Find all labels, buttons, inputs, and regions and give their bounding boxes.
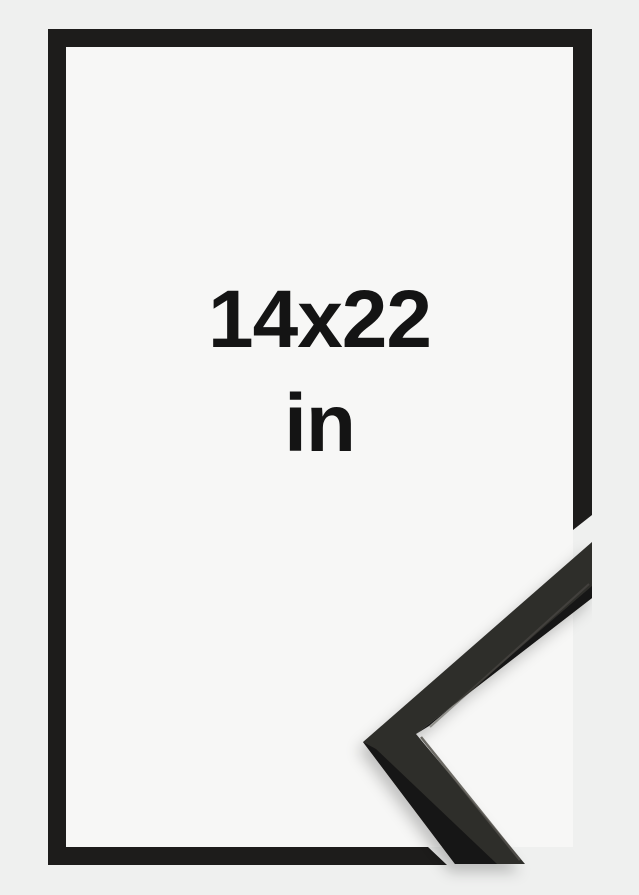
size-label: 14x22 in [0, 268, 639, 476]
frame-product-image: 14x22 in [0, 0, 639, 895]
size-dimensions: 14x22 [0, 268, 639, 372]
size-unit: in [0, 372, 639, 476]
